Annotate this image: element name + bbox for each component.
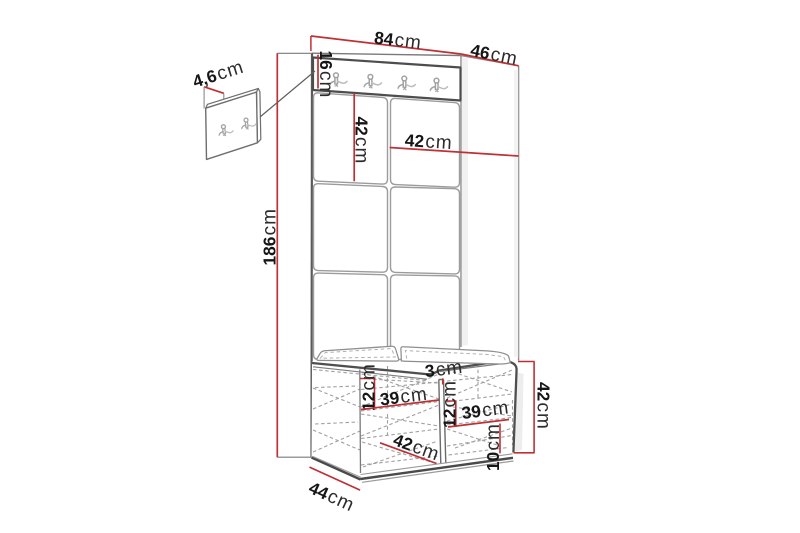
svg-text:42cm: 42cm — [350, 117, 371, 165]
svg-text:16cm: 16cm — [315, 51, 336, 99]
svg-text:12cm: 12cm — [358, 363, 379, 411]
svg-text:186cm: 186cm — [260, 208, 281, 265]
svg-text:12cm: 12cm — [439, 380, 460, 428]
svg-text:42cm: 42cm — [533, 382, 554, 430]
svg-text:10cm: 10cm — [483, 423, 504, 471]
